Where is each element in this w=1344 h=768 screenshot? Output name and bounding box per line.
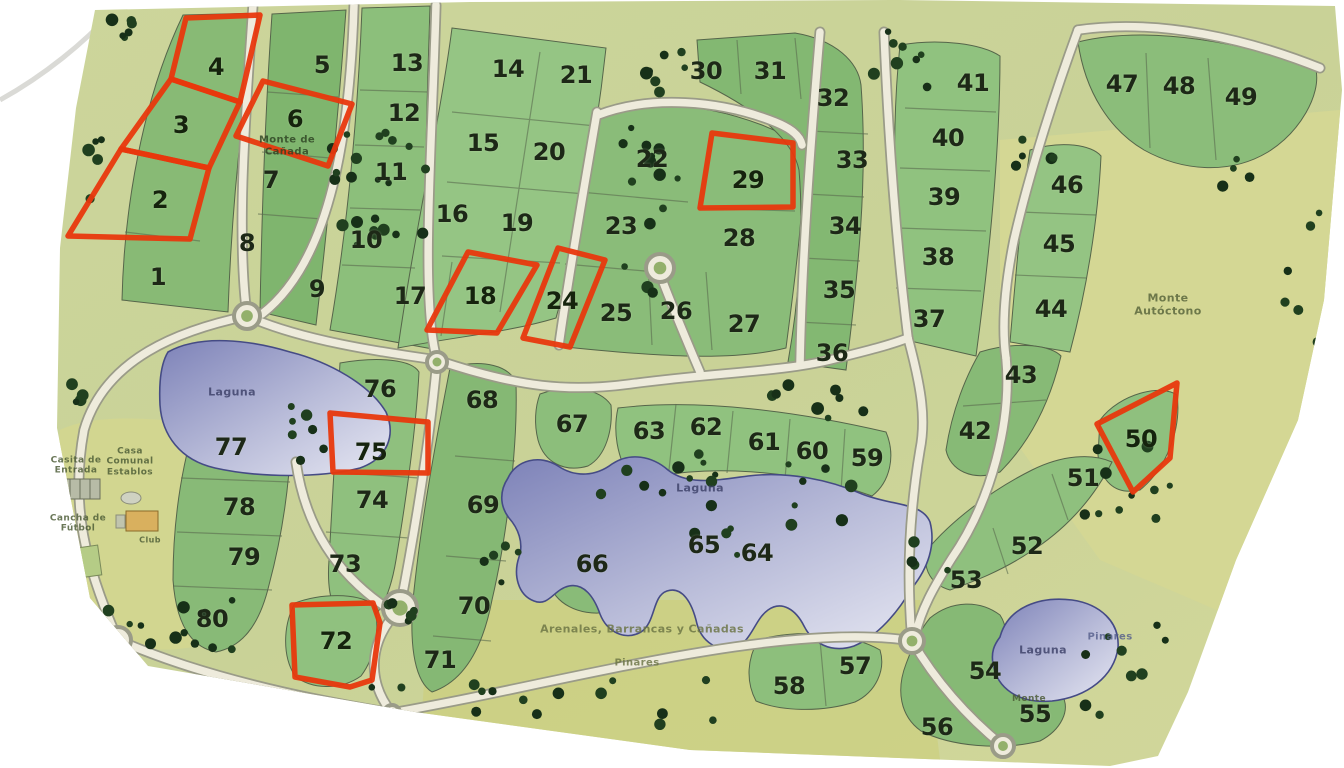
- lot-42[interactable]: 42: [959, 419, 991, 443]
- lot-34[interactable]: 34: [829, 214, 861, 238]
- lot-56[interactable]: 56: [921, 715, 953, 739]
- lot-66[interactable]: 66: [576, 552, 608, 576]
- lot-10[interactable]: 10: [350, 228, 382, 252]
- lot-47[interactable]: 47: [1106, 72, 1138, 96]
- lot-30[interactable]: 30: [690, 59, 722, 83]
- lot-80[interactable]: 80: [196, 607, 228, 631]
- lot-19[interactable]: 19: [501, 211, 533, 235]
- lot-48[interactable]: 48: [1163, 74, 1195, 98]
- lot-78[interactable]: 78: [223, 495, 255, 519]
- map-canvas: [0, 0, 1344, 768]
- lot-1[interactable]: 1: [150, 265, 166, 289]
- lot-16[interactable]: 16: [436, 202, 468, 226]
- lot-79[interactable]: 79: [228, 545, 260, 569]
- lot-20[interactable]: 20: [533, 140, 565, 164]
- lot-51[interactable]: 51: [1067, 466, 1099, 490]
- lot-72[interactable]: 72: [320, 629, 352, 653]
- lot-39[interactable]: 39: [928, 185, 960, 209]
- lot-74[interactable]: 74: [356, 488, 388, 512]
- lot-49[interactable]: 49: [1225, 85, 1257, 109]
- lot-65[interactable]: 65: [688, 533, 720, 557]
- lot-27[interactable]: 27: [728, 312, 760, 336]
- lot-18[interactable]: 18: [464, 284, 496, 308]
- lot-14[interactable]: 14: [492, 57, 524, 81]
- lot-50[interactable]: 50: [1125, 427, 1157, 451]
- lot-75[interactable]: 75: [355, 440, 387, 464]
- masterplan-map: 1234567891011121314151617181920212223242…: [0, 0, 1344, 768]
- lot-36[interactable]: 36: [816, 341, 848, 365]
- lot-12[interactable]: 12: [388, 101, 420, 125]
- lot-37[interactable]: 37: [913, 307, 945, 331]
- lot-21[interactable]: 21: [560, 63, 592, 87]
- lot-25[interactable]: 25: [600, 301, 632, 325]
- lot-46[interactable]: 46: [1051, 173, 1083, 197]
- lot-77[interactable]: 77: [215, 435, 247, 459]
- lot-53[interactable]: 53: [950, 568, 982, 592]
- lot-17[interactable]: 17: [394, 284, 426, 308]
- lot-71[interactable]: 71: [424, 648, 456, 672]
- lot-33[interactable]: 33: [836, 148, 868, 172]
- lot-62[interactable]: 62: [690, 415, 722, 439]
- lot-57[interactable]: 57: [839, 654, 871, 678]
- lot-11[interactable]: 11: [375, 160, 407, 184]
- lot-73[interactable]: 73: [329, 552, 361, 576]
- lot-52[interactable]: 52: [1011, 534, 1043, 558]
- lot-60[interactable]: 60: [796, 439, 828, 463]
- lot-15[interactable]: 15: [467, 131, 499, 155]
- lot-40[interactable]: 40: [932, 126, 964, 150]
- lot-70[interactable]: 70: [458, 594, 490, 618]
- lot-3[interactable]: 3: [173, 113, 189, 137]
- lot-26[interactable]: 26: [660, 299, 692, 323]
- entrance-building-icon: [52, 479, 100, 499]
- lot-4[interactable]: 4: [208, 55, 224, 79]
- lot-7[interactable]: 7: [263, 168, 279, 192]
- lot-76[interactable]: 76: [364, 377, 396, 401]
- lot-54[interactable]: 54: [969, 659, 1001, 683]
- lot-22[interactable]: 22: [636, 147, 668, 171]
- lot-45[interactable]: 45: [1043, 232, 1075, 256]
- lot-28[interactable]: 28: [723, 226, 755, 250]
- lot-58[interactable]: 58: [773, 674, 805, 698]
- lot-32[interactable]: 32: [817, 86, 849, 110]
- lot-29[interactable]: 29: [732, 168, 764, 192]
- lot-13[interactable]: 13: [391, 51, 423, 75]
- lot-61[interactable]: 61: [748, 430, 780, 454]
- lot-69[interactable]: 69: [467, 493, 499, 517]
- lot-23[interactable]: 23: [605, 214, 637, 238]
- plaza-icon: [121, 492, 141, 504]
- lot-8[interactable]: 8: [239, 231, 255, 255]
- lot-6[interactable]: 6: [287, 107, 303, 131]
- lot-38[interactable]: 38: [922, 245, 954, 269]
- lot-55[interactable]: 55: [1019, 702, 1051, 726]
- lot-31[interactable]: 31: [754, 59, 786, 83]
- lot-2[interactable]: 2: [152, 188, 168, 212]
- lot-35[interactable]: 35: [823, 278, 855, 302]
- lot-59[interactable]: 59: [851, 446, 883, 470]
- lot-63[interactable]: 63: [633, 419, 665, 443]
- lot-64[interactable]: 64: [741, 541, 773, 565]
- lot-9[interactable]: 9: [309, 277, 325, 301]
- lot-43[interactable]: 43: [1005, 363, 1037, 387]
- lot-68[interactable]: 68: [466, 388, 498, 412]
- lot-24[interactable]: 24: [546, 289, 578, 313]
- lot-41[interactable]: 41: [957, 71, 989, 95]
- lot-67[interactable]: 67: [556, 412, 588, 436]
- lot-44[interactable]: 44: [1035, 297, 1067, 321]
- lot-5[interactable]: 5: [314, 53, 330, 77]
